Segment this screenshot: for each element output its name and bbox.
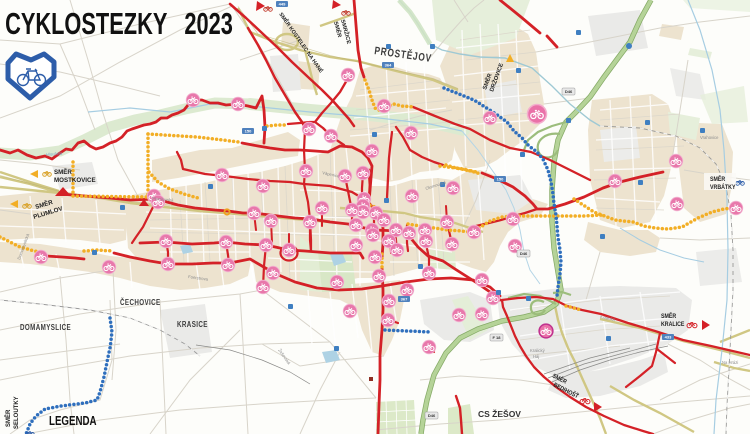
- svg-text:LEGENDA: LEGENDA: [49, 415, 97, 428]
- svg-text:DOMAMYSLICE: DOMAMYSLICE: [20, 324, 71, 332]
- svg-text:CYKLOSTEZKY 2023: CYKLOSTEZKY 2023: [5, 6, 233, 41]
- svg-text:SMĚR: SMĚR: [4, 409, 12, 427]
- svg-text:D46: D46: [428, 413, 436, 418]
- svg-text:SMĚR: SMĚR: [661, 312, 677, 321]
- svg-text:ČECHOVICE: ČECHOVICE: [120, 297, 161, 307]
- svg-text:449: 449: [279, 2, 286, 7]
- svg-text:KRASICE: KRASICE: [177, 321, 208, 329]
- svg-text:SMĚR: SMĚR: [710, 175, 726, 184]
- svg-text:F 18: F 18: [492, 335, 501, 340]
- svg-text:Háj: Háj: [533, 354, 539, 359]
- svg-text:SELOUTKY: SELOUTKY: [14, 396, 20, 429]
- svg-text:Vrahovice: Vrahovice: [700, 135, 719, 140]
- svg-text:367: 367: [401, 297, 408, 302]
- svg-text:433: 433: [665, 335, 672, 340]
- svg-text:CS ŽEŠOV: CS ŽEŠOV: [478, 408, 521, 419]
- svg-text:D46: D46: [520, 251, 528, 256]
- svg-text:Kralický: Kralický: [530, 348, 546, 353]
- svg-text:D46: D46: [565, 89, 573, 94]
- svg-text:364: 364: [385, 63, 392, 68]
- svg-text:150: 150: [245, 129, 252, 134]
- svg-text:MOSTKOVICE: MOSTKOVICE: [54, 177, 96, 184]
- svg-text:SMĚR: SMĚR: [54, 168, 72, 176]
- svg-text:150: 150: [497, 177, 504, 182]
- svg-text:VRBÁTKY: VRBÁTKY: [710, 184, 736, 192]
- svg-text:KRALICE: KRALICE: [661, 322, 685, 328]
- svg-text:Na Hrázi: Na Hrázi: [722, 360, 738, 365]
